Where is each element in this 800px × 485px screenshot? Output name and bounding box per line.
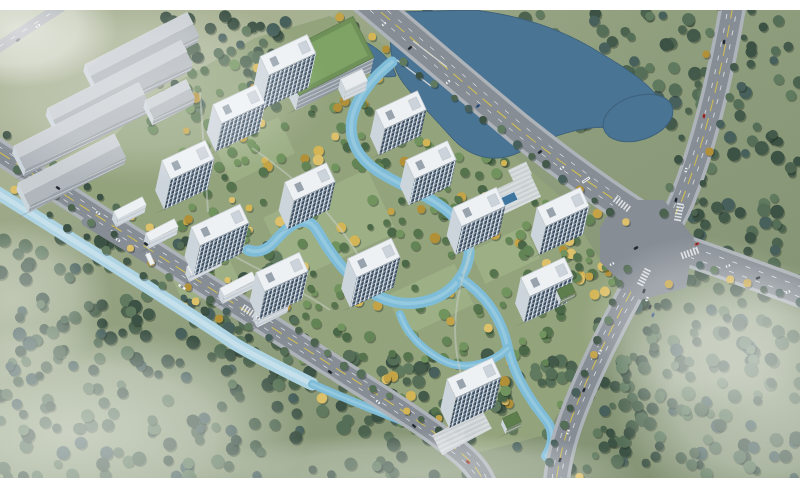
tree — [181, 295, 187, 301]
tree — [234, 326, 242, 334]
tree — [516, 230, 526, 240]
tree — [311, 318, 321, 328]
tree — [403, 363, 414, 374]
tree — [513, 140, 522, 149]
tree — [459, 342, 468, 351]
tree — [295, 327, 302, 334]
tree — [280, 16, 292, 28]
tree — [302, 161, 311, 170]
tree — [757, 203, 770, 216]
tree — [206, 296, 214, 304]
tree — [572, 388, 581, 397]
tree — [585, 272, 593, 280]
tree — [297, 239, 307, 249]
tree — [770, 194, 779, 203]
tree — [417, 205, 425, 213]
tree — [342, 333, 351, 342]
tree — [490, 269, 498, 277]
tree — [245, 323, 253, 331]
tree — [411, 241, 420, 250]
tree — [659, 209, 668, 218]
tree — [396, 230, 404, 238]
tree — [687, 29, 700, 42]
tree — [705, 148, 713, 156]
tree — [336, 420, 350, 434]
tree — [442, 336, 451, 345]
tree — [307, 285, 314, 292]
tree — [418, 391, 429, 402]
tree — [558, 175, 567, 184]
tree — [783, 42, 793, 52]
tree — [770, 56, 778, 64]
tree — [358, 132, 365, 139]
tree — [430, 233, 441, 244]
tree — [567, 405, 574, 412]
tree — [745, 232, 756, 243]
tree — [659, 11, 667, 19]
frame-top-band — [0, 0, 800, 10]
tree — [771, 46, 780, 55]
tree — [737, 82, 747, 92]
tree — [479, 116, 487, 124]
tree — [382, 46, 389, 53]
tree — [540, 331, 547, 338]
tree — [340, 362, 348, 370]
tree — [592, 198, 598, 204]
tree — [753, 123, 761, 131]
tree — [536, 10, 545, 19]
tree — [158, 282, 166, 290]
tree — [177, 242, 184, 249]
tree — [369, 385, 376, 392]
tree — [423, 139, 431, 147]
tree — [700, 180, 706, 186]
tree — [759, 216, 772, 229]
tree — [645, 12, 654, 21]
tree — [311, 338, 319, 346]
tree — [412, 375, 425, 388]
tree — [473, 304, 482, 313]
tree — [411, 285, 418, 292]
tree — [785, 162, 796, 173]
tree — [383, 219, 390, 226]
tree — [505, 237, 512, 244]
tree — [331, 302, 337, 308]
tree — [387, 228, 397, 238]
tree — [192, 297, 200, 305]
tree — [316, 405, 328, 417]
tree — [702, 51, 709, 58]
tree — [421, 356, 428, 363]
tree — [573, 253, 581, 261]
tree — [542, 160, 550, 168]
tree — [184, 215, 192, 223]
tree — [333, 103, 342, 112]
tree — [331, 164, 339, 172]
tree — [726, 93, 734, 101]
tree — [84, 233, 91, 240]
tree — [741, 149, 749, 157]
tree — [768, 130, 777, 139]
tree — [695, 81, 702, 88]
tree — [561, 250, 568, 257]
tree — [460, 168, 469, 177]
tree — [63, 224, 71, 232]
tree — [402, 260, 409, 267]
tree — [455, 196, 462, 203]
tree — [338, 323, 346, 331]
tree — [759, 22, 768, 31]
tree — [599, 42, 610, 53]
tree — [336, 122, 346, 132]
tree — [335, 13, 344, 22]
tree — [280, 347, 289, 356]
tree — [403, 408, 410, 415]
tree — [403, 377, 411, 385]
tree — [500, 385, 511, 396]
tree — [669, 83, 682, 96]
tree — [538, 379, 546, 387]
tree — [367, 195, 378, 206]
tree — [600, 426, 606, 432]
tree — [259, 167, 268, 176]
tree — [102, 246, 111, 255]
tree — [364, 331, 375, 342]
tree — [246, 205, 253, 212]
tree — [711, 201, 723, 213]
tree — [705, 28, 714, 37]
tree — [131, 315, 142, 326]
tree — [678, 134, 684, 140]
tree — [225, 277, 231, 283]
tree — [734, 110, 745, 121]
aerial-render-canvas — [0, 0, 800, 485]
tree — [418, 416, 424, 422]
tree — [660, 38, 673, 51]
tree — [546, 368, 557, 379]
tree — [317, 393, 328, 404]
tree — [68, 204, 75, 211]
tree — [522, 221, 531, 230]
tree — [519, 338, 526, 345]
tree — [303, 300, 311, 308]
tree — [123, 257, 131, 265]
tree — [265, 334, 272, 341]
tree — [324, 349, 331, 356]
tree — [528, 153, 535, 160]
tree — [502, 287, 512, 297]
tree — [465, 105, 473, 113]
tree — [497, 125, 505, 133]
tree — [413, 229, 422, 238]
tree — [127, 245, 134, 252]
tree — [47, 212, 53, 218]
tree — [741, 34, 747, 40]
tree — [368, 33, 376, 41]
tree — [140, 272, 148, 280]
tree — [403, 352, 412, 361]
tree — [399, 58, 407, 66]
tree — [446, 317, 454, 325]
tree — [599, 405, 610, 416]
tree — [215, 315, 223, 323]
tree — [359, 353, 367, 361]
tree — [431, 80, 438, 87]
tree — [226, 182, 236, 192]
tree — [730, 63, 738, 71]
tree — [727, 147, 741, 161]
tree — [770, 205, 784, 219]
tree — [388, 208, 395, 215]
tree — [774, 74, 784, 84]
tree — [652, 79, 664, 91]
tree — [586, 257, 592, 263]
tree — [622, 218, 629, 225]
tree — [699, 198, 707, 206]
tree — [523, 246, 533, 256]
tree — [188, 204, 195, 211]
tree — [331, 133, 339, 141]
aerial-site-plan — [0, 0, 800, 485]
tree — [97, 194, 103, 200]
tree — [389, 350, 396, 357]
tree — [357, 369, 366, 378]
tree — [223, 308, 231, 316]
tree — [302, 313, 309, 320]
tree — [666, 183, 674, 191]
tree — [733, 99, 743, 109]
tree — [500, 302, 506, 308]
tree — [484, 324, 493, 333]
tree — [260, 199, 267, 206]
tree — [755, 141, 769, 155]
tree — [386, 392, 392, 398]
tree — [501, 160, 507, 166]
tree — [87, 219, 95, 227]
tree — [606, 208, 614, 216]
tree — [201, 306, 209, 314]
tree — [575, 263, 583, 271]
tree — [367, 224, 373, 230]
tree — [682, 13, 695, 26]
tree — [692, 210, 698, 216]
tree — [560, 420, 569, 429]
tree — [629, 56, 639, 66]
tree — [384, 374, 392, 382]
tree — [336, 291, 343, 298]
tree — [581, 370, 588, 377]
tree — [589, 16, 600, 27]
tree — [724, 131, 736, 143]
tree — [451, 95, 457, 101]
tree — [645, 63, 654, 72]
tree — [111, 231, 118, 238]
tree — [678, 25, 687, 34]
tree — [773, 15, 784, 26]
frame-bottom-band — [0, 478, 800, 485]
tree — [475, 171, 483, 179]
tree — [184, 283, 192, 291]
tree — [786, 90, 796, 100]
tree — [165, 273, 172, 280]
tree — [229, 197, 235, 203]
tree — [339, 243, 348, 252]
tree — [491, 168, 501, 178]
tree — [310, 271, 316, 277]
tree — [674, 155, 683, 164]
tree — [143, 308, 155, 320]
tree — [668, 62, 679, 73]
tree — [398, 197, 405, 204]
tree — [416, 72, 423, 79]
tree — [716, 120, 724, 128]
tree — [586, 249, 593, 256]
tree — [530, 368, 542, 380]
tree — [313, 155, 324, 166]
tree — [542, 359, 549, 366]
tree — [290, 316, 299, 325]
tree — [747, 60, 755, 68]
tree — [735, 207, 746, 218]
tree — [399, 218, 406, 225]
tree — [627, 33, 635, 41]
tree — [771, 151, 785, 165]
tree — [685, 107, 692, 114]
tree — [746, 46, 757, 57]
tree — [688, 67, 702, 81]
